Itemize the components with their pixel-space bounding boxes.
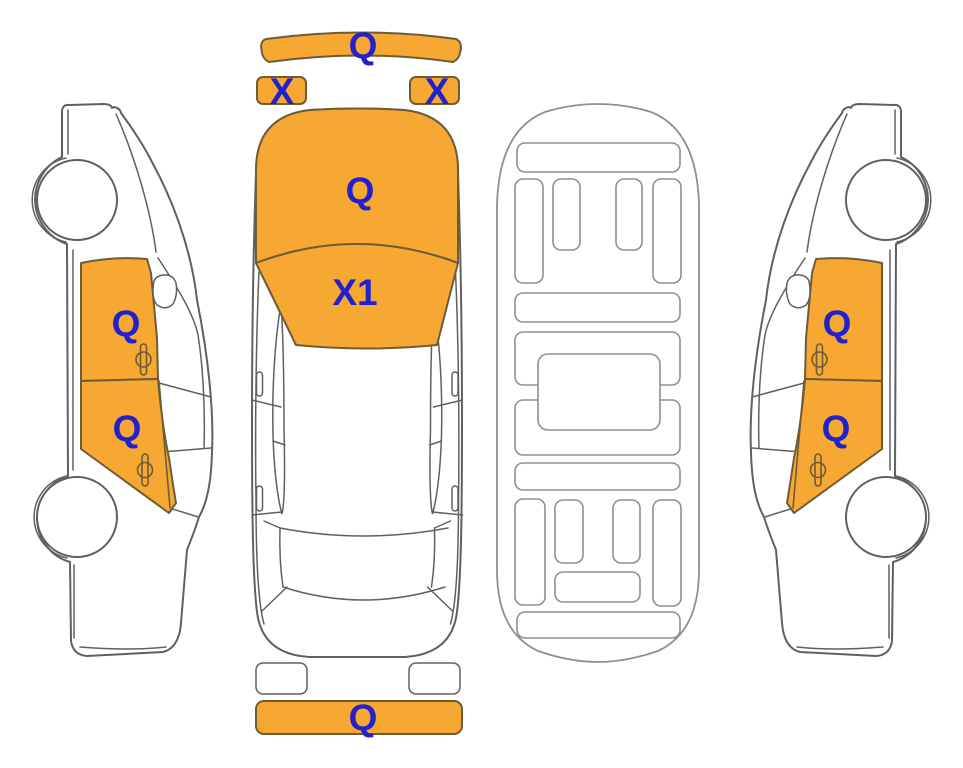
damage-code-headlight-right: X xyxy=(425,71,450,112)
taillight-right xyxy=(409,663,460,694)
right-side-car[interactable] xyxy=(751,104,931,656)
interior-rear-left-seat xyxy=(555,500,583,563)
damage-code-right-rear-door: Q xyxy=(822,408,851,449)
door-handle-icon xyxy=(257,486,263,511)
side-mirror xyxy=(153,275,177,308)
damage-code-right-front-door: Q xyxy=(823,303,852,344)
interior-front-left-outer xyxy=(515,179,543,283)
interior-view xyxy=(497,104,699,662)
interior-front-right-outer xyxy=(653,179,681,283)
door-handle-icon xyxy=(257,372,263,396)
interior-front-right-seat xyxy=(616,179,642,250)
interior-mid-panel xyxy=(515,293,680,322)
vehicle-damage-diagram: Q Q Q X X Q X1 xyxy=(0,0,963,768)
interior-rear-left-outer xyxy=(515,499,545,605)
damage-code-headlight-left: X xyxy=(270,71,295,112)
top-view: Q X X Q X1 Q xyxy=(252,25,463,738)
damage-code-left-rear-door: Q xyxy=(113,408,142,449)
damage-code-left-front-door: Q xyxy=(112,303,141,344)
interior-rear-right-seat xyxy=(613,500,640,563)
taillight-left xyxy=(256,663,307,694)
interior-front-left-seat xyxy=(553,179,580,250)
interior-rear-right-outer xyxy=(653,500,681,606)
interior-rear-shelf xyxy=(517,612,680,638)
left-side-view: Q Q xyxy=(32,104,212,656)
rear-wheel xyxy=(37,477,117,557)
interior-center-armrest xyxy=(538,354,660,430)
diagram-canvas: Q Q Q X X Q X1 xyxy=(0,0,963,768)
interior-rear-center xyxy=(555,572,640,602)
damage-code-windshield: X1 xyxy=(332,272,377,313)
right-side-view: Q Q xyxy=(751,104,931,656)
damage-code-rear-bumper: Q xyxy=(349,697,378,738)
interior-dashboard xyxy=(517,143,680,172)
interior-mid-panel xyxy=(515,463,680,490)
damage-code-hood: Q xyxy=(346,170,375,211)
damage-code-front-bumper: Q xyxy=(349,25,378,66)
front-wheel xyxy=(37,160,117,240)
